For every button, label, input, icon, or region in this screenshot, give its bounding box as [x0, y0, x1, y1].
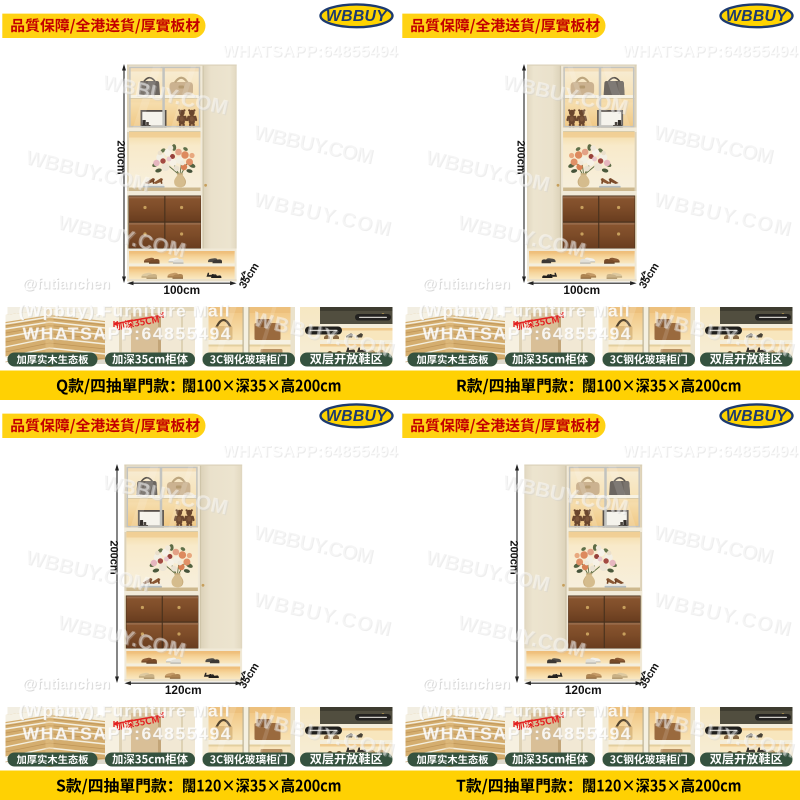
svg-text:35cm: 35cm	[637, 261, 662, 291]
svg-text:120cm: 120cm	[165, 683, 202, 697]
svg-text:120cm: 120cm	[565, 683, 602, 697]
svg-text:35cm: 35cm	[237, 261, 262, 291]
svg-text:100cm: 100cm	[163, 283, 200, 297]
svg-text:100cm: 100cm	[563, 283, 600, 297]
